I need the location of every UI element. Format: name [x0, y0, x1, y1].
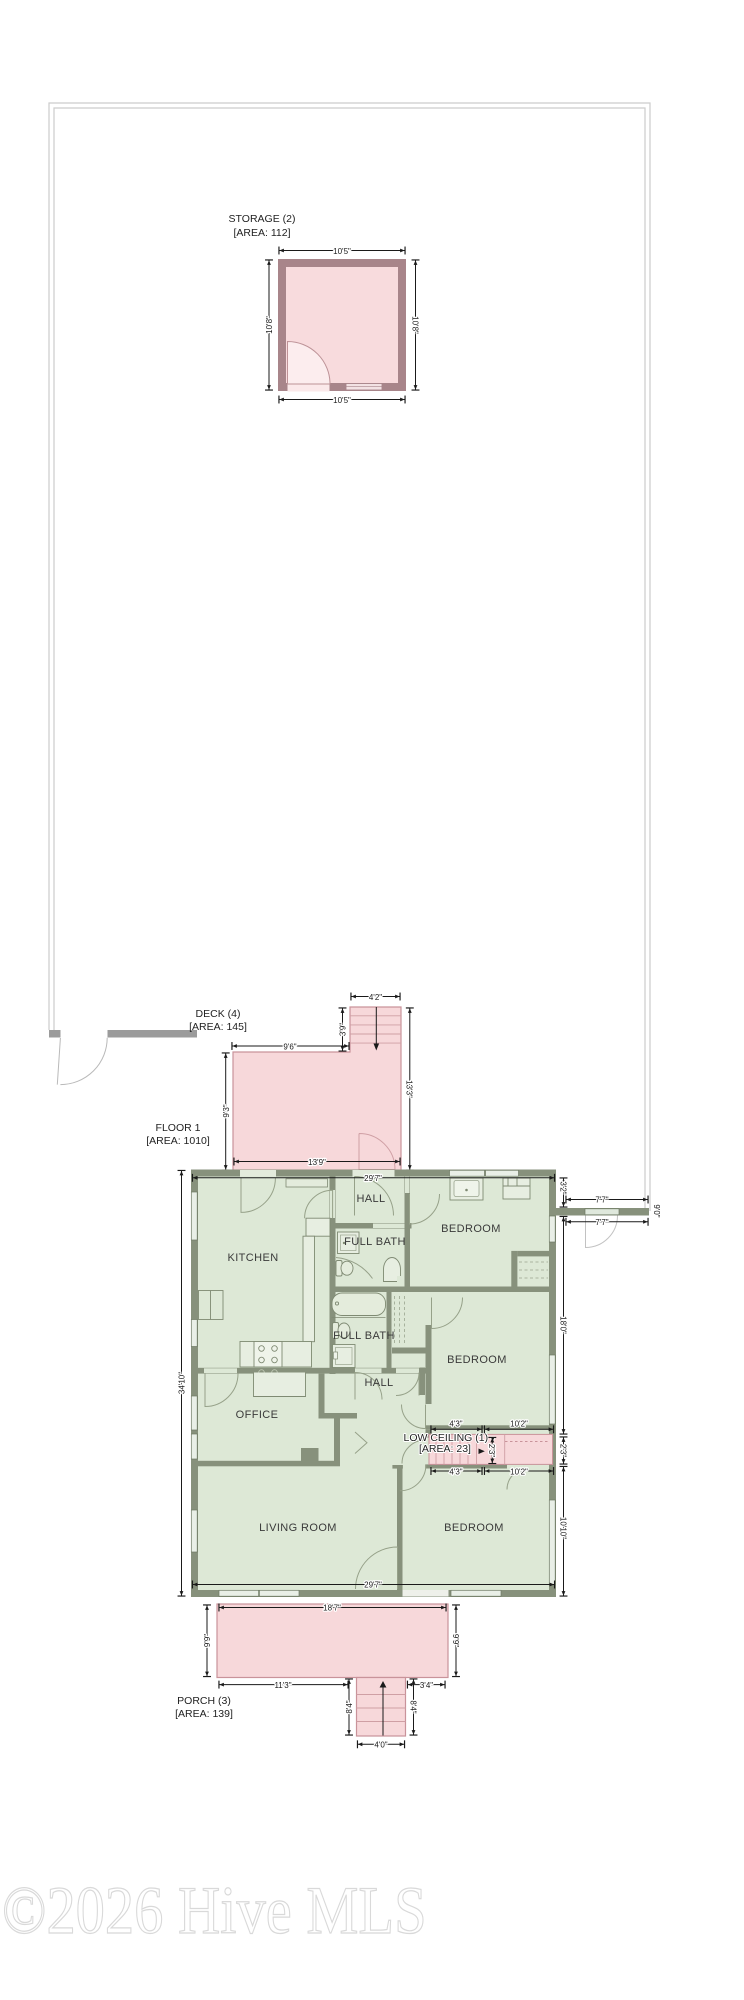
svg-text:9'0": 9'0" — [652, 1204, 661, 1217]
svg-text:10'5": 10'5" — [333, 396, 351, 405]
svg-text:29'7": 29'7" — [364, 1581, 382, 1590]
svg-text:13'3": 13'3" — [405, 1080, 414, 1098]
svg-text:7'7": 7'7" — [595, 1218, 608, 1227]
svg-text:2'3": 2'3" — [487, 1444, 496, 1457]
svg-text:PORCH (3): PORCH (3) — [177, 1695, 231, 1707]
svg-text:FULL BATH: FULL BATH — [333, 1330, 395, 1342]
svg-text:9'6": 9'6" — [283, 1042, 296, 1051]
svg-text:11'3": 11'3" — [274, 1681, 291, 1690]
svg-text:4'3": 4'3" — [449, 1467, 462, 1476]
svg-text:©2026 Hive MLS: ©2026 Hive MLS — [2, 1873, 427, 1948]
svg-text:34'10": 34'10" — [178, 1372, 187, 1394]
svg-text:FULL BATH: FULL BATH — [344, 1236, 406, 1248]
svg-text:DECK (4): DECK (4) — [196, 1008, 241, 1020]
svg-text:4'0": 4'0" — [374, 1741, 387, 1750]
svg-text:[AREA: 139]: [AREA: 139] — [175, 1708, 233, 1720]
svg-text:10'2": 10'2" — [510, 1467, 528, 1476]
svg-text:13'9": 13'9" — [308, 1158, 326, 1167]
svg-text:8'4": 8'4" — [408, 1700, 417, 1713]
svg-text:18'0": 18'0" — [558, 1316, 567, 1334]
svg-text:3'4": 3'4" — [420, 1681, 433, 1690]
svg-text:LIVING ROOM: LIVING ROOM — [259, 1522, 337, 1534]
svg-text:BEDROOM: BEDROOM — [447, 1354, 507, 1366]
svg-text:9'3": 9'3" — [222, 1104, 231, 1117]
svg-text:10'8": 10'8" — [410, 316, 419, 334]
svg-text:4'2": 4'2" — [369, 993, 382, 1002]
svg-text:2'3": 2'3" — [558, 1444, 567, 1457]
svg-text:[AREA: 112]: [AREA: 112] — [233, 227, 290, 239]
svg-text:10'8": 10'8" — [265, 316, 274, 334]
svg-text:KITCHEN: KITCHEN — [227, 1252, 278, 1264]
svg-text:9'9": 9'9" — [203, 1634, 212, 1647]
svg-text:BEDROOM: BEDROOM — [444, 1522, 504, 1534]
svg-text:18'7": 18'7" — [323, 1604, 341, 1613]
svg-text:[AREA: 1010]: [AREA: 1010] — [146, 1135, 210, 1147]
svg-text:3'9": 3'9" — [339, 1023, 348, 1036]
svg-text:FLOOR 1: FLOOR 1 — [156, 1122, 201, 1134]
svg-text:29'7": 29'7" — [364, 1174, 382, 1183]
svg-text:HALL: HALL — [364, 1377, 393, 1389]
svg-text:[AREA: 23]: [AREA: 23] — [419, 1443, 471, 1455]
svg-text:7'7": 7'7" — [595, 1196, 608, 1205]
svg-text:10'2": 10'2" — [510, 1420, 528, 1429]
svg-text:BEDROOM: BEDROOM — [441, 1223, 501, 1235]
svg-text:8'4": 8'4" — [345, 1700, 354, 1713]
svg-text:4'3": 4'3" — [449, 1420, 462, 1429]
svg-text:10'10": 10'10" — [558, 1517, 567, 1539]
svg-text:OFFICE: OFFICE — [236, 1409, 279, 1421]
svg-text:[AREA: 145]: [AREA: 145] — [189, 1021, 247, 1033]
svg-text:10'5": 10'5" — [333, 247, 351, 256]
svg-text:9'9": 9'9" — [451, 1634, 460, 1647]
svg-text:STORAGE (2): STORAGE (2) — [229, 213, 296, 225]
svg-text:3'2": 3'2" — [558, 1181, 567, 1194]
svg-text:HALL: HALL — [356, 1193, 385, 1205]
